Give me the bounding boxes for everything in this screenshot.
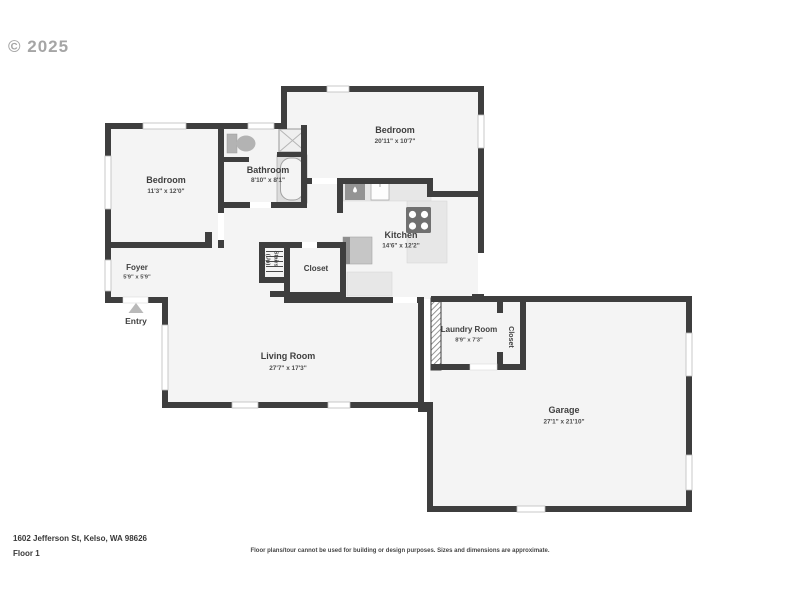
window: [686, 333, 692, 376]
bedroom-left-door-opening: [218, 213, 224, 240]
laundry-door-opening: [470, 364, 497, 370]
window: [517, 506, 545, 512]
room-label-bedroom-left: Bedroom: [146, 175, 186, 185]
room-label-bathroom: Bathroom: [247, 165, 290, 175]
window: [248, 123, 274, 129]
entry-label: Entry: [125, 316, 147, 326]
room-label-living-room: Living Room: [261, 351, 316, 361]
room-label-kitchen: Kitchen: [384, 230, 417, 240]
kitchen-passage-opening: [393, 297, 417, 303]
entry-door-opening: [123, 297, 148, 303]
stairs-label-line1: Stairs: [273, 251, 279, 267]
copyright-watermark: © 2025: [8, 37, 69, 56]
toilet-tank: [227, 134, 237, 153]
room-dims-foyer: 5'9" x 5'9": [123, 275, 151, 281]
room-dims-bedroom-left: 11'3" x 12'0": [147, 188, 184, 195]
toilet-bowl: [237, 136, 256, 152]
window: [105, 260, 111, 291]
room-label-closet-hall: Closet: [304, 264, 329, 273]
hatched-wall: [431, 298, 441, 370]
window: [686, 455, 692, 490]
room-dims-bathroom: 8'10" x 8'1": [251, 177, 285, 184]
bathroom-door-opening: [250, 202, 271, 208]
stairs-label-line2: (Up): [265, 254, 271, 266]
entry-arrow-icon: [129, 303, 144, 313]
window: [328, 402, 350, 408]
footer-floor-label: Floor 1: [13, 549, 40, 558]
room-dims-garage: 27'1" x 21'10": [543, 419, 584, 426]
floor-plan-canvas: © 2025: [0, 0, 800, 600]
footer-disclaimer: Floor plans/tour cannot be used for buil…: [250, 548, 549, 554]
room-dims-laundry-room: 8'9" x 7'3": [455, 338, 483, 344]
room-label-laundry-room: Laundry Room: [441, 325, 497, 334]
window: [478, 115, 484, 148]
window: [327, 86, 349, 92]
room-label-closet-laundry: Closet: [507, 326, 514, 348]
window: [143, 123, 186, 129]
room-dims-living-room: 27'7" x 17'3": [269, 365, 307, 372]
window: [232, 402, 258, 408]
closet-door-opening: [302, 242, 317, 248]
back-door-opening: [478, 253, 484, 294]
bedroom-door-opening: [312, 178, 337, 184]
floor-plan-page: © 2025: [0, 0, 800, 600]
room-label-garage: Garage: [548, 405, 579, 415]
room-label-bedroom-main: Bedroom: [375, 125, 415, 135]
window: [162, 325, 168, 390]
room-dims-kitchen: 14'6" x 12'2": [382, 243, 420, 250]
footer-address: 1602 Jefferson St, Kelso, WA 98626: [13, 534, 148, 543]
room-dims-bedroom-main: 20'11" x 10'7": [375, 138, 416, 145]
window: [105, 156, 111, 209]
room-label-foyer: Foyer: [126, 263, 148, 272]
